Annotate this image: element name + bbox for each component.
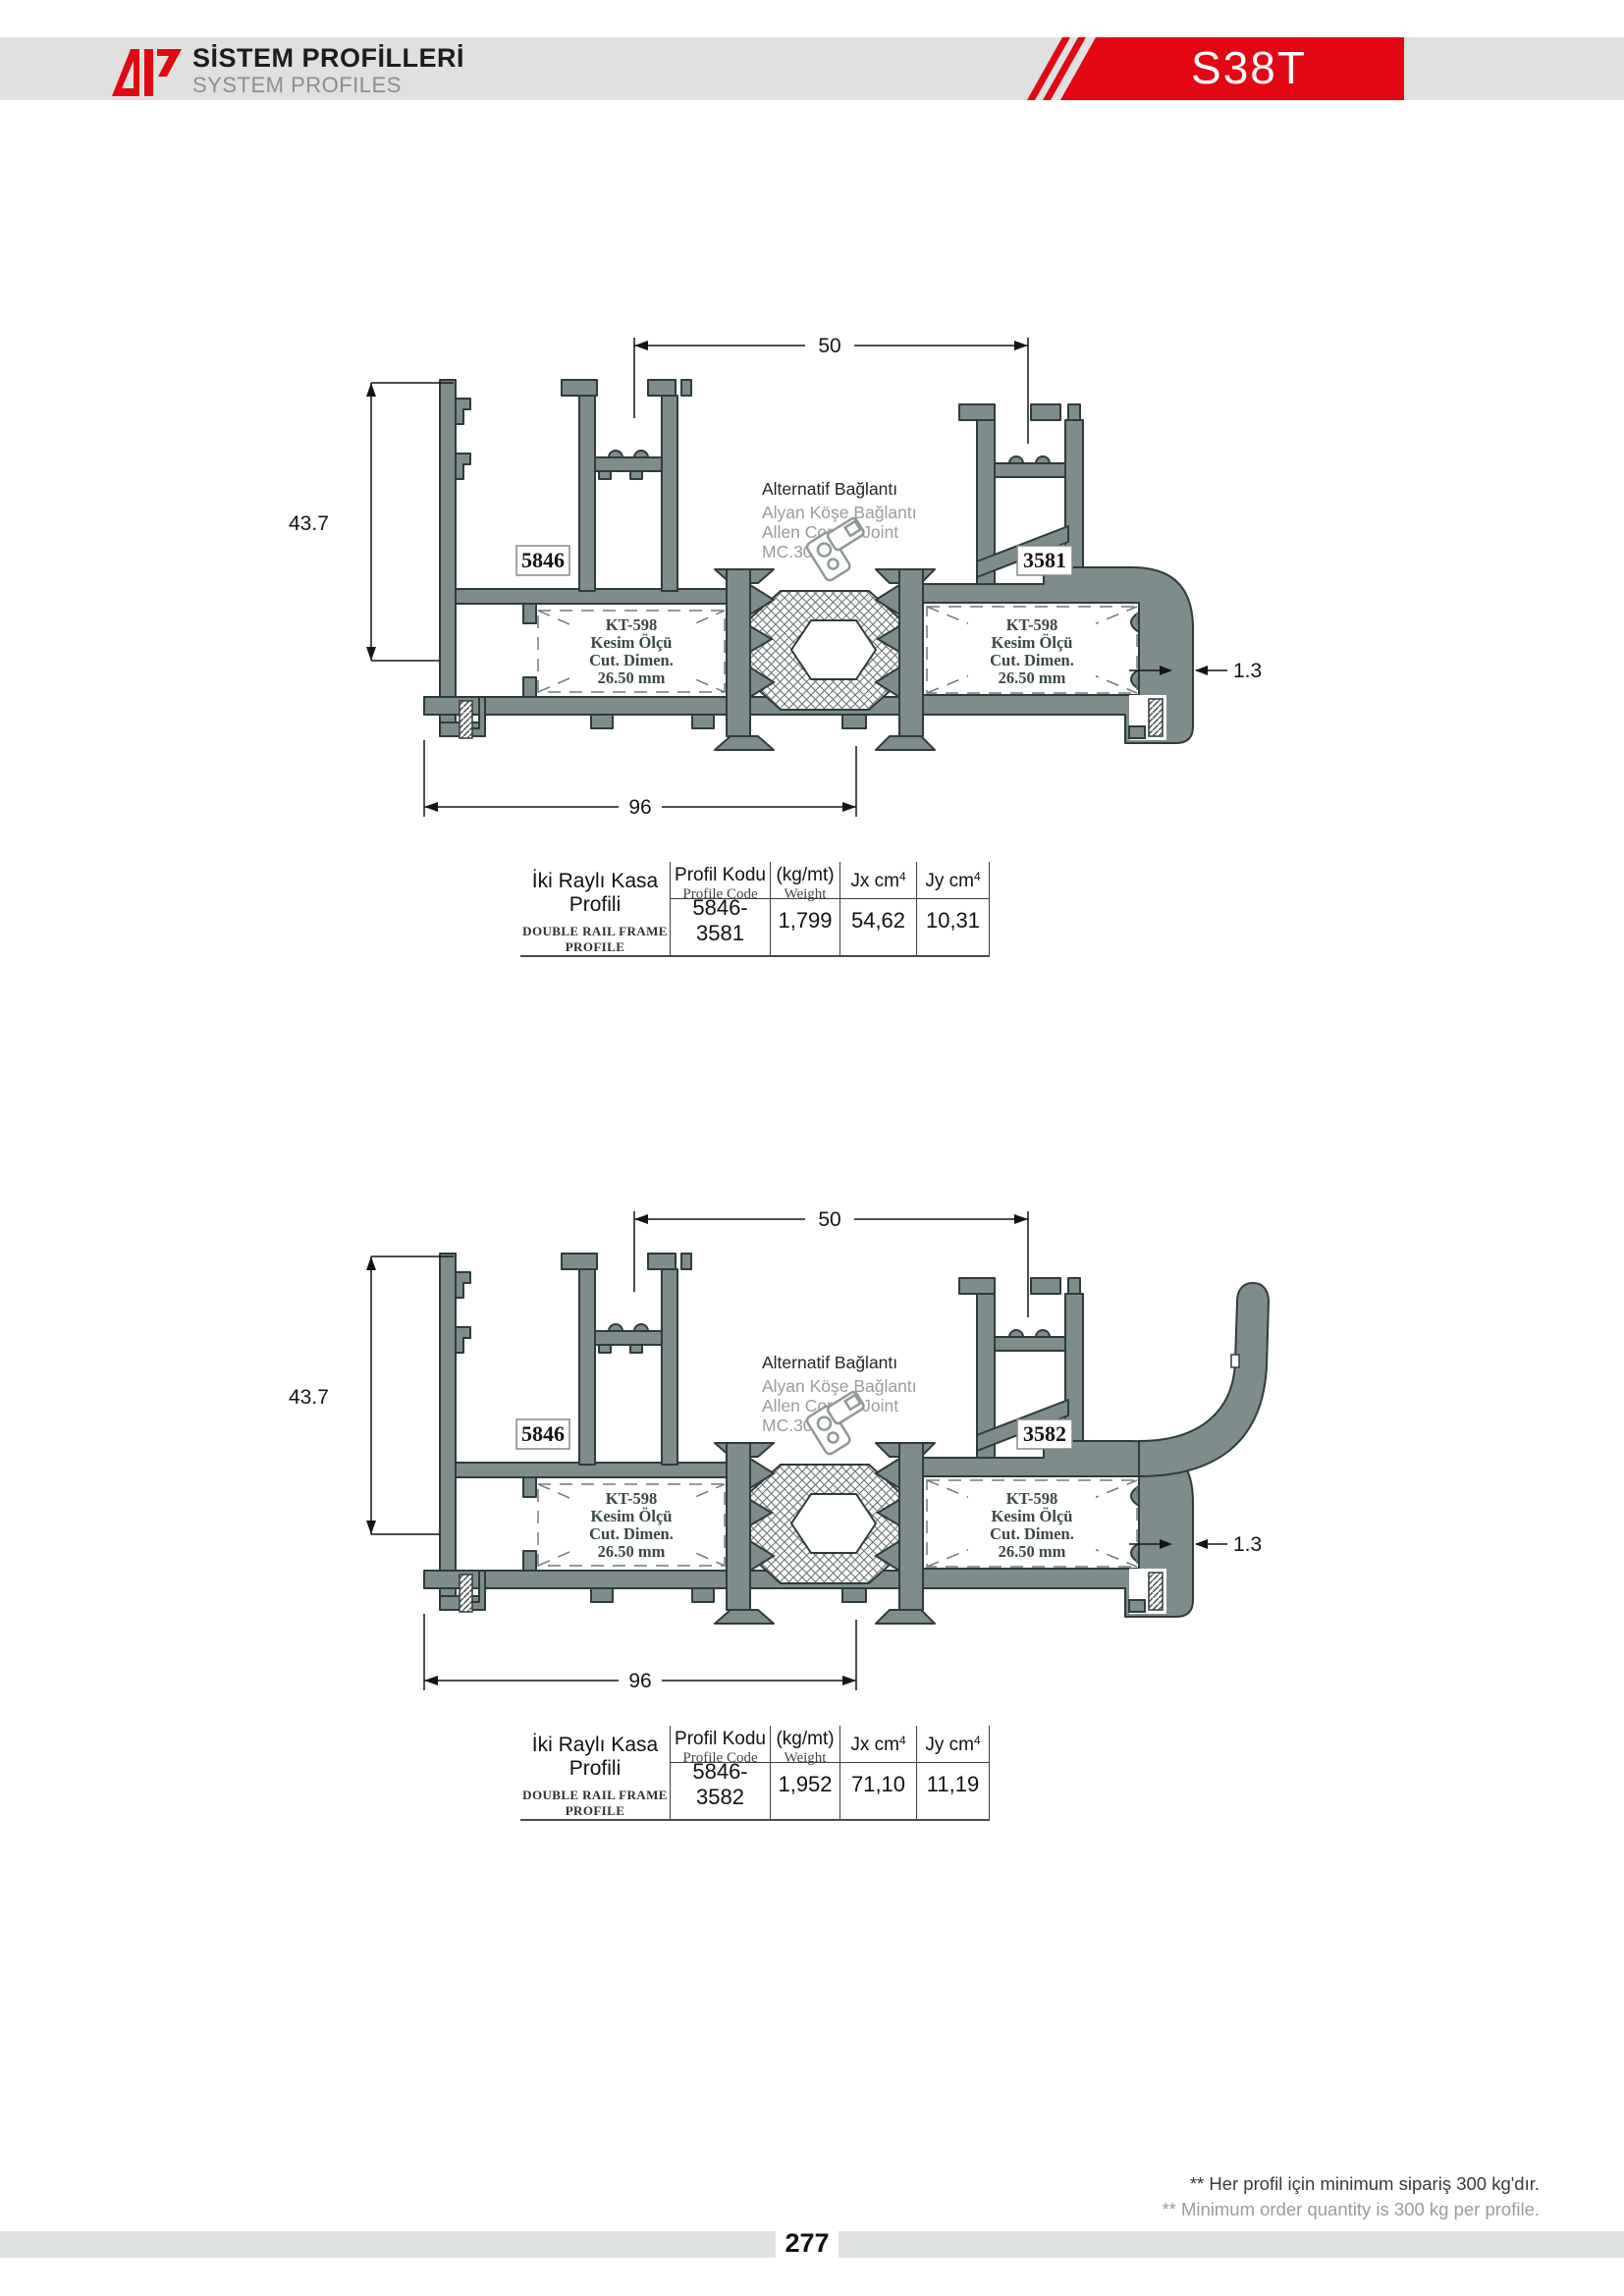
profile-code-left: 5846	[521, 548, 565, 572]
profile-code-left: 5846	[521, 1421, 565, 1446]
svg-text:26.50 mm: 26.50 mm	[598, 668, 666, 687]
svg-text:Kesim Ölçü: Kesim Ölçü	[591, 1507, 673, 1525]
thermal-break-insulator	[750, 1465, 899, 1583]
profile-name-english: DOUBLE RAIL FRAME PROFILE	[520, 1788, 670, 1819]
header-jy: Jy cm	[925, 871, 974, 892]
svg-text:KT-598: KT-598	[606, 1489, 658, 1508]
svg-text:KT-598: KT-598	[1006, 1489, 1058, 1508]
cell-jy: 10,31	[917, 899, 989, 942]
header-jy-sup: 4	[974, 1734, 981, 1747]
dim-width-label: 50	[818, 335, 840, 357]
profile-code-right: 3582	[1023, 1421, 1066, 1446]
svg-text:Alyan Köşe Bağlantı: Alyan Köşe Bağlantı	[762, 1376, 917, 1396]
page-title-english: SYSTEM PROFILES	[192, 73, 402, 98]
profile-name-cell: İki Raylı Kasa Profili DOUBLE RAIL FRAME…	[520, 862, 670, 955]
profile-name-cell: İki Raylı Kasa Profili DOUBLE RAIL FRAME…	[520, 1726, 670, 1819]
column-jy: Jy cm4 11,19	[916, 1726, 990, 1819]
profile-name-english: DOUBLE RAIL FRAME PROFILE	[520, 924, 670, 955]
brand-logo-icon	[110, 41, 183, 98]
catalog-page: SİSTEM PROFİLLERİ SYSTEM PROFILES S38T	[0, 0, 1624, 2296]
svg-text:Alternatif Bağlantı: Alternatif Bağlantı	[762, 1353, 897, 1372]
dim-total-label: 96	[628, 796, 651, 819]
header-jx-sup: 4	[899, 870, 906, 883]
header-profil-kodu: Profil Kodu	[671, 1729, 770, 1750]
column-weight: (kg/mt) Weight 1,952	[770, 1726, 839, 1819]
dim-height-label: 43.7	[289, 512, 329, 535]
svg-text:KT-598: KT-598	[1006, 615, 1058, 634]
dim-height-label: 43.7	[289, 1386, 329, 1409]
column-jy: Jy cm4 10,31	[916, 862, 990, 955]
column-jx: Jx cm4 54,62	[839, 862, 916, 955]
svg-text:Alyan Köşe Bağlantı: Alyan Köşe Bağlantı	[762, 503, 917, 522]
gasket-bar	[460, 1575, 472, 1612]
svg-text:26.50 mm: 26.50 mm	[999, 1542, 1066, 1561]
cell-jx: 71,10	[840, 1763, 916, 1806]
gasket-bar	[1149, 699, 1163, 736]
model-banner: S38T	[1011, 37, 1414, 100]
svg-text:Cut. Dimen.: Cut. Dimen.	[990, 1524, 1074, 1543]
cell-weight: 1,952	[771, 1763, 839, 1806]
page-title-turkish: SİSTEM PROFİLLERİ	[192, 43, 464, 74]
svg-text:26.50 mm: 26.50 mm	[999, 668, 1066, 687]
svg-text:Kesim Ölçü: Kesim Ölçü	[992, 633, 1073, 652]
column-profile-code: Profil Kodu Profile Code 5846-3581	[670, 862, 770, 955]
column-profile-code: Profil Kodu Profile Code 5846-3582	[670, 1726, 770, 1819]
svg-text:Cut. Dimen.: Cut. Dimen.	[589, 651, 674, 669]
model-code: S38T	[1191, 42, 1307, 93]
profile-spec-table-2: İki Raylı Kasa Profili DOUBLE RAIL FRAME…	[520, 1726, 990, 1821]
svg-text:KT-598: KT-598	[606, 615, 658, 634]
svg-text:Alternatif Bağlantı: Alternatif Bağlantı	[762, 479, 897, 499]
svg-text:Kesim Ölçü: Kesim Ölçü	[591, 633, 673, 652]
header-jy: Jy cm	[925, 1735, 974, 1756]
header-kg-mt: (kg/mt)	[771, 865, 839, 886]
technical-drawing-3582: 50 43.7 96 1.3 5846 3582 KT-598 Kesim Öl…	[245, 1109, 1326, 1757]
technical-drawing-3581: 50 43.7 96 1.3 5846 3581 KT-598 Kesim Öl…	[245, 236, 1326, 883]
profile-code-right: 3581	[1023, 548, 1066, 572]
gasket-bar	[460, 701, 472, 738]
cell-profile-code: 5846-3581	[671, 899, 770, 942]
j-flange	[1139, 1283, 1269, 1476]
cell-profile-code: 5846-3582	[671, 1763, 770, 1806]
svg-text:26.50 mm: 26.50 mm	[598, 1542, 666, 1561]
header-jy-sup: 4	[974, 870, 981, 883]
column-jx: Jx cm4 71,10	[839, 1726, 916, 1819]
header-kg-mt: (kg/mt)	[771, 1729, 839, 1750]
svg-text:Cut. Dimen.: Cut. Dimen.	[589, 1524, 674, 1543]
dim-total-label: 96	[628, 1670, 651, 1692]
profile-name-turkish: İki Raylı Kasa Profili	[520, 1734, 670, 1781]
profile-spec-table-1: İki Raylı Kasa Profili DOUBLE RAIL FRAME…	[520, 862, 990, 957]
dim-width-label: 50	[818, 1208, 840, 1231]
thermal-break-insulator	[750, 591, 899, 710]
header-profil-kodu: Profil Kodu	[671, 865, 770, 886]
page-number: 277	[776, 2228, 839, 2259]
header-jx-sup: 4	[899, 1734, 906, 1747]
column-weight: (kg/mt) Weight 1,799	[770, 862, 839, 955]
profile-name-turkish: İki Raylı Kasa Profili	[520, 870, 670, 917]
min-order-note-english: ** Minimum order quantity is 300 kg per …	[1162, 2197, 1540, 2222]
cell-weight: 1,799	[771, 899, 839, 942]
svg-text:Kesim Ölçü: Kesim Ölçü	[992, 1507, 1073, 1525]
gasket-bar	[1149, 1573, 1163, 1610]
cell-jy: 11,19	[917, 1763, 989, 1806]
dim-wall-label: 1.3	[1233, 660, 1262, 682]
header-jx: Jx cm	[850, 1735, 899, 1756]
dim-wall-label: 1.3	[1233, 1533, 1262, 1556]
min-order-note-turkish: ** Her profil için minimum sipariş 300 k…	[1162, 2171, 1540, 2197]
svg-text:Cut. Dimen.: Cut. Dimen.	[990, 651, 1074, 669]
cell-jx: 54,62	[840, 899, 916, 942]
header-jx: Jx cm	[850, 871, 899, 892]
footer-notes: ** Her profil için minimum sipariş 300 k…	[1162, 2171, 1540, 2222]
